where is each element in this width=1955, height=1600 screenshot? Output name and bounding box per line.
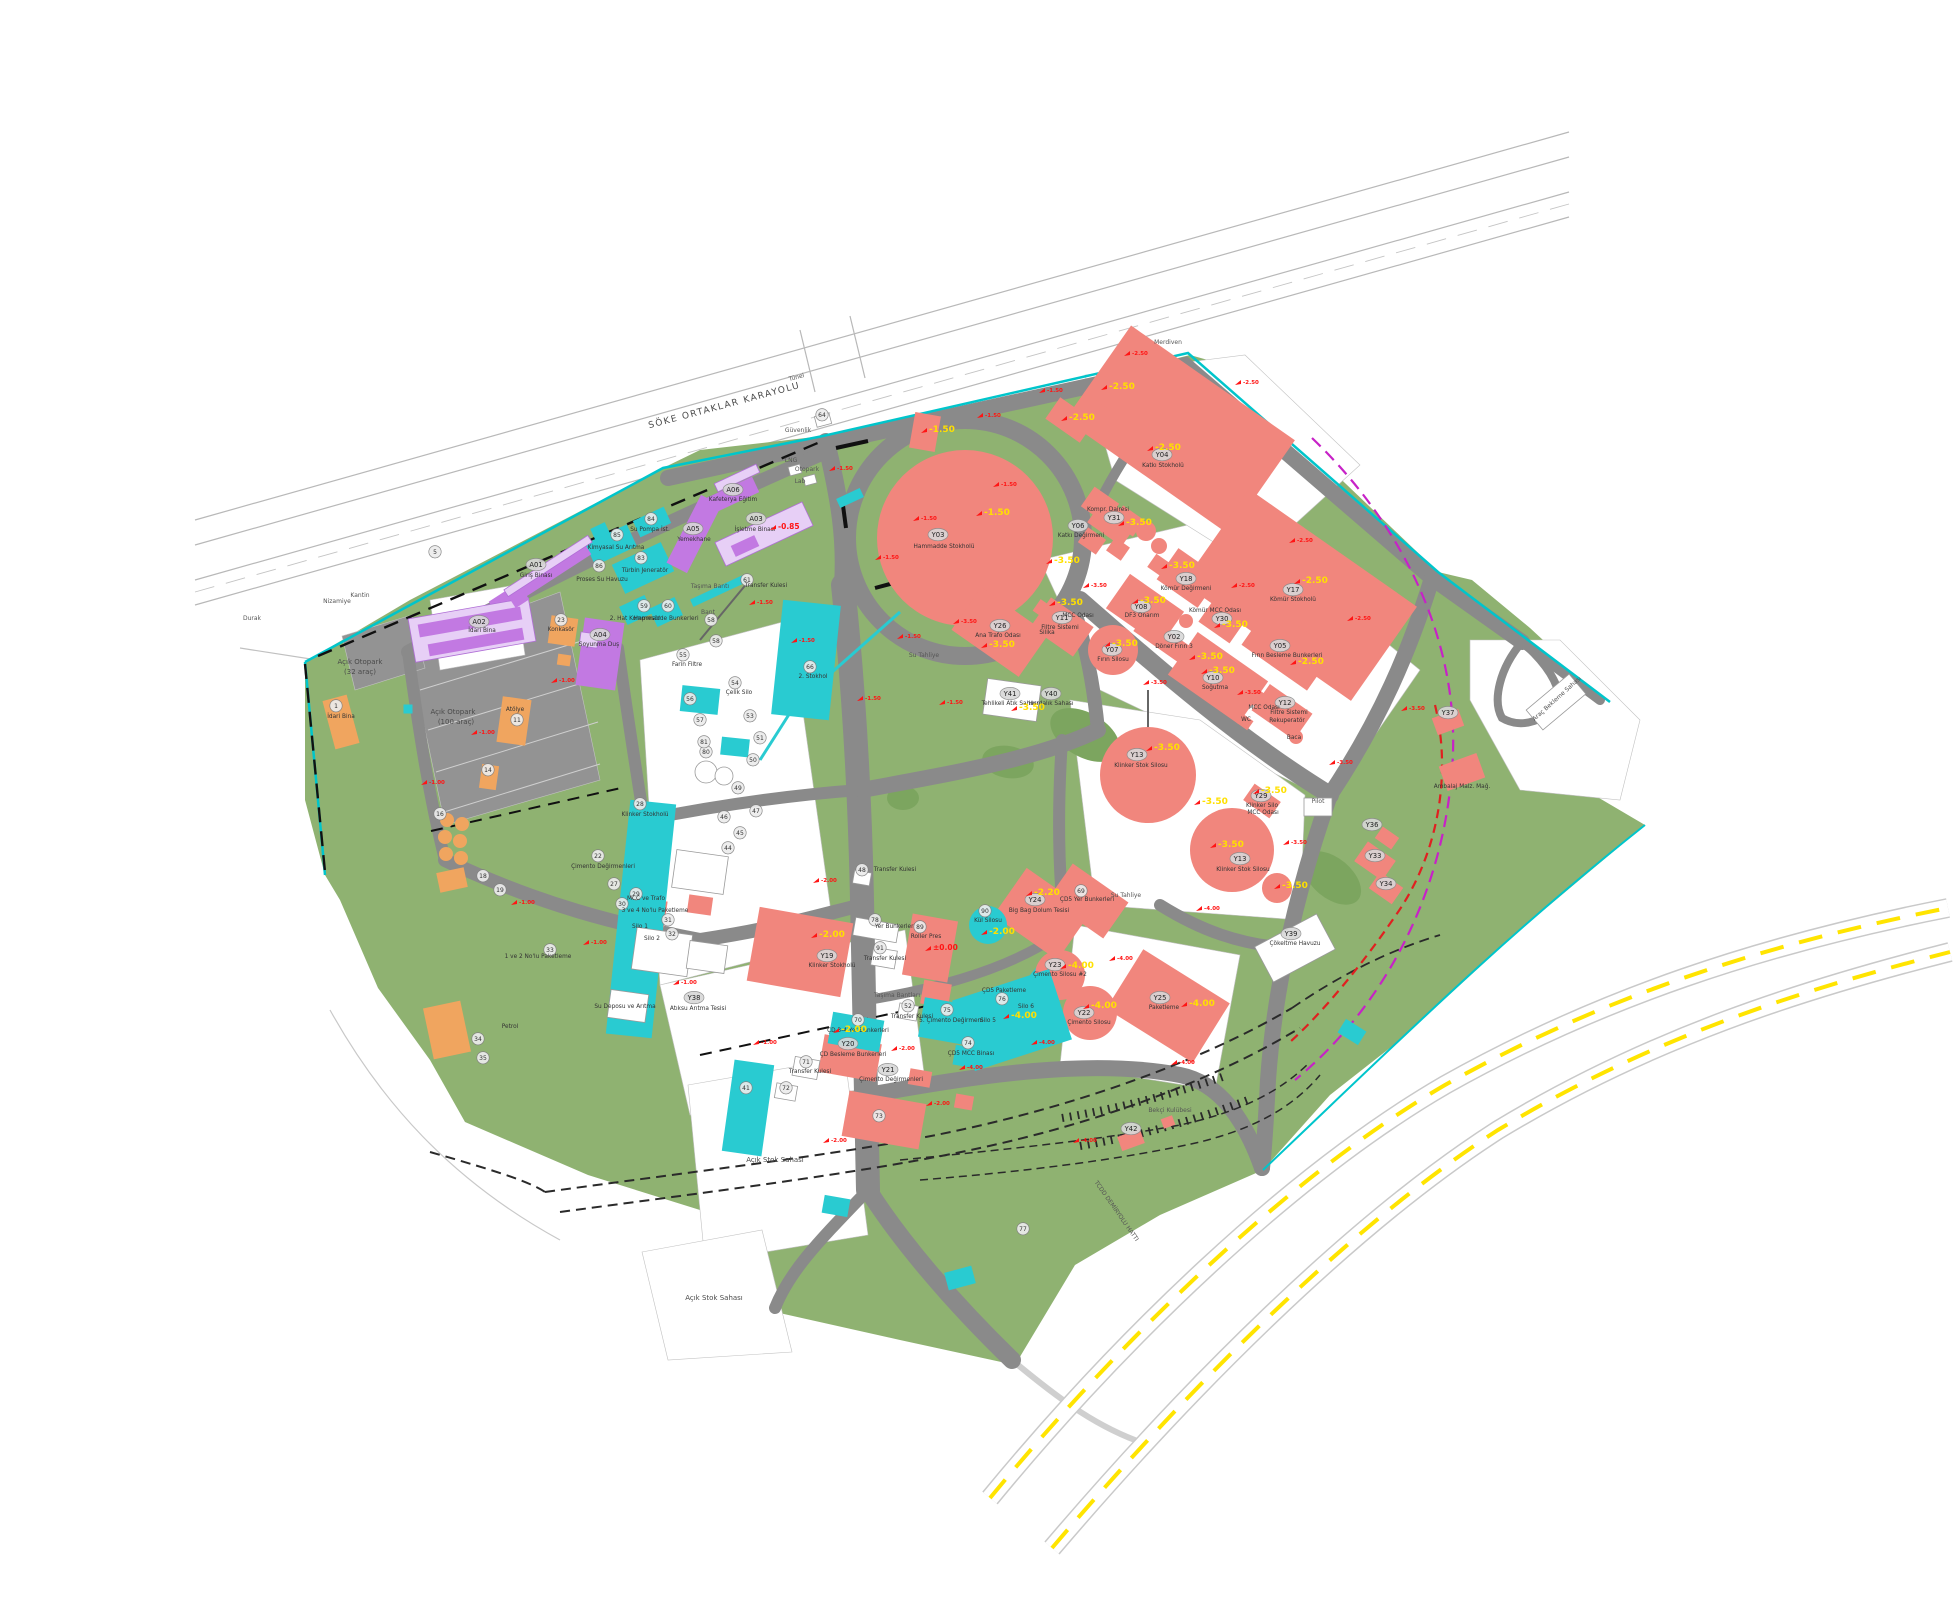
map-label-y03: Y03 bbox=[931, 531, 945, 539]
map-label-y13: Y13 bbox=[1233, 855, 1247, 863]
map-label-hammadde-bunkerleri: Hammadde Bunkerleri bbox=[633, 616, 699, 622]
map-label-y06: Y06 bbox=[1071, 522, 1085, 530]
map-label-proses-su-havuzu: Proses Su Havuzu bbox=[576, 577, 628, 583]
map-label-32-ara: (32 araç) bbox=[344, 668, 376, 676]
elevation-value-2-50: -2.50 bbox=[1155, 443, 1181, 453]
elevation-value-3-50: -3.50 bbox=[1126, 518, 1152, 528]
map-label-merdiven: Merdiven bbox=[1154, 339, 1182, 346]
map-label-11: 11 bbox=[513, 717, 521, 724]
elevation-value-3-50: -3.50 bbox=[1202, 797, 1228, 807]
elevation-value-1-50: -1.50 bbox=[837, 466, 853, 472]
elevation-value-2-50: -2.50 bbox=[1355, 616, 1371, 622]
elevation-value-1-50: -1.50 bbox=[947, 700, 963, 706]
map-label-35: 35 bbox=[479, 1055, 487, 1062]
elevation-value-3-50: -3.50 bbox=[989, 640, 1015, 650]
map-label-klinker-stokhol: Klinker Stokholü bbox=[808, 963, 855, 969]
building-kiln-extra-3 bbox=[1179, 614, 1193, 628]
elevation-value-1-00: -1.00 bbox=[559, 678, 575, 684]
elevation-value-3-50: -3.50 bbox=[1282, 881, 1308, 891]
map-label-konkas-r: Konkasör bbox=[548, 627, 575, 633]
map-label-f-r-n-silosu: Fırın Silosu bbox=[1097, 657, 1129, 663]
map-label-84: 84 bbox=[647, 516, 655, 523]
map-label-big-bag-dolum-tesisi: Big Bag Dolum Tesisi bbox=[1009, 908, 1070, 914]
map-label-y41: Y41 bbox=[1003, 690, 1017, 698]
elevation-value-1-00: -1.00 bbox=[681, 980, 697, 986]
map-label-y22: Y22 bbox=[1077, 1009, 1091, 1017]
building-stokhol-66 bbox=[771, 600, 841, 720]
map-label-y34: Y34 bbox=[1379, 880, 1393, 888]
map-label-90: 90 bbox=[981, 908, 989, 915]
map-label-imento-silosu: Çimento Silosu bbox=[1067, 1020, 1111, 1026]
elevation-value-2-50: -2.50 bbox=[1239, 583, 1255, 589]
map-label-y25: Y25 bbox=[1153, 994, 1167, 1002]
building-silo16-6 bbox=[454, 851, 468, 865]
map-label-a06: A06 bbox=[726, 486, 739, 494]
map-label-16: 16 bbox=[436, 811, 444, 818]
map-label-silo-1: Silo 1 bbox=[632, 924, 648, 930]
building-silo16-5 bbox=[439, 847, 453, 861]
map-label-transfer-kulesi: Transfer Kulesi bbox=[873, 867, 917, 873]
map-label-pilot: Pilot bbox=[1312, 798, 1325, 805]
elevation-value-4-00: -4.00 bbox=[1068, 961, 1094, 971]
map-label-50: 50 bbox=[749, 757, 757, 764]
building-silo-2 bbox=[715, 767, 733, 785]
map-label-46: 46 bbox=[720, 814, 728, 821]
map-label-57: 57 bbox=[696, 717, 704, 724]
building-mill-small-1 bbox=[687, 894, 713, 915]
map-label-89: 89 bbox=[916, 924, 924, 931]
elevation-value-2-00: -2.00 bbox=[899, 1046, 915, 1052]
map-label-a-k-stok-sahas: Açık Stok Sahası bbox=[746, 1156, 804, 1164]
map-label-imento-de-irmenleri: Çimento Değirmenleri bbox=[859, 1076, 923, 1083]
elevation-value-3-50: -3.50 bbox=[1019, 703, 1045, 713]
map-label-1: 1 bbox=[334, 703, 338, 710]
map-label-32: 32 bbox=[668, 931, 676, 938]
building-konkasor-23b bbox=[557, 654, 571, 667]
elevation-value-1-50: -1.50 bbox=[865, 696, 881, 702]
elevation-value-3-50: -3.50 bbox=[1091, 583, 1107, 589]
map-label-69: 69 bbox=[1077, 888, 1085, 895]
map-label-otopark: Otopark bbox=[795, 466, 820, 473]
map-label-y19: Y19 bbox=[820, 952, 834, 960]
map-label-at-ksu-ar-tma-tesisi: Atıksu Arıtma Tesisi bbox=[670, 1006, 727, 1012]
map-label-hammadde-stokhol: Hammadde Stokholü bbox=[914, 544, 975, 550]
building-mill-white-1 bbox=[672, 850, 729, 895]
map-label-giri-binas: Giriş Binası bbox=[520, 573, 553, 579]
elevation-value-2-00: -2.00 bbox=[831, 1138, 847, 1144]
map-label-y23: Y23 bbox=[1048, 961, 1062, 969]
elevation-value-2-50: -2.50 bbox=[1109, 382, 1135, 392]
map-label-33: 33 bbox=[546, 947, 554, 954]
map-label-86: 86 bbox=[595, 563, 603, 570]
elevation-value-3-50: -3.50 bbox=[1169, 561, 1195, 571]
map-label-k-l-silosu: Kül Silosu bbox=[974, 918, 1002, 924]
map-label-2-stokhol: 2. Stokhol bbox=[798, 674, 827, 680]
elevation-value-3-50: -3.50 bbox=[1154, 743, 1180, 753]
map-label-transfer-kulesi: Transfer Kulesi bbox=[788, 1069, 832, 1075]
map-label-su-deposu-ve-ar-tma: Su Deposu ve Arıtma bbox=[594, 1004, 656, 1010]
map-label-64: 64 bbox=[818, 412, 826, 419]
map-label-y20: Y20 bbox=[841, 1040, 855, 1048]
elevation-value-3-50: -3.50 bbox=[1057, 598, 1083, 608]
map-label-51: 51 bbox=[756, 735, 764, 742]
map-label-imento-de-irmenleri: Çimento Değirmenleri bbox=[571, 863, 635, 870]
map-label-klinker-stok-silosu: Klinker Stok Silosu bbox=[1114, 763, 1168, 769]
map-label-transfer-kulesi: Transfer Kulesi bbox=[744, 583, 788, 589]
elevation-value-0-85: -0.85 bbox=[778, 522, 800, 531]
map-label-77: 77 bbox=[1019, 1226, 1027, 1233]
map-label-a05: A05 bbox=[686, 525, 699, 533]
map-label-s-ke-ortaklar-karayolu: SÖKE ORTAKLAR KARAYOLU bbox=[647, 380, 801, 431]
map-label-paketleme: Paketleme bbox=[1149, 1005, 1180, 1011]
elevation-value-3-50: -3.50 bbox=[1337, 760, 1353, 766]
map-label-70: 70 bbox=[854, 1017, 862, 1024]
map-label-y37: Y37 bbox=[1441, 709, 1455, 717]
map-label-lng: LNG bbox=[785, 457, 798, 464]
map-label-so-utma: Soğutma bbox=[1202, 684, 1228, 691]
building-mill-white-2 bbox=[631, 927, 692, 976]
map-label-su-pompa-i-st: Su Pompa İst. bbox=[630, 526, 670, 533]
elevation-value-3-50: -3.50 bbox=[1261, 786, 1287, 796]
building-mill-white-3 bbox=[686, 940, 728, 973]
map-label-y18: Y18 bbox=[1179, 575, 1193, 583]
map-label-76: 76 bbox=[998, 996, 1006, 1003]
map-label-y17: Y17 bbox=[1286, 586, 1300, 594]
map-label-y26: Y26 bbox=[993, 622, 1007, 630]
map-label-49: 49 bbox=[734, 785, 742, 792]
map-label-soyunma-du: Soyunma Duş bbox=[579, 642, 619, 648]
map-label-kafeterya-e-itim: Kafeterya Eğitim bbox=[709, 496, 758, 503]
building-cyan-mid-2 bbox=[720, 737, 750, 758]
map-label-a02: A02 bbox=[472, 618, 485, 626]
map-label-45: 45 bbox=[736, 830, 744, 837]
elevation-value-1-50: -1.50 bbox=[1001, 482, 1017, 488]
building-silo16-4 bbox=[453, 834, 467, 848]
map-label-i-letme-binas: İşletme Binası bbox=[735, 526, 776, 533]
map-label-41: 41 bbox=[742, 1085, 750, 1092]
map-label-1-ve-2-no-lu-paketleme: 1 ve 2 No'lu Paketleme bbox=[505, 954, 572, 960]
map-label-nizamiye: Nizamiye bbox=[323, 598, 351, 605]
map-label-ta-ma-bant: Taşıma Bantı bbox=[690, 583, 730, 590]
map-label-durak: Durak bbox=[243, 615, 262, 622]
map-label-i-dari-bina: İdari Bina bbox=[468, 627, 496, 634]
map-label-su-tahliye: Su Tahliye bbox=[1111, 892, 1142, 899]
elevation-value-3-50: -3.50 bbox=[1218, 840, 1244, 850]
map-label-katk-stokhol: Katkı Stokholü bbox=[1142, 463, 1184, 469]
elevation-value-2-00: -2.00 bbox=[819, 930, 845, 940]
map-label-60: 60 bbox=[664, 603, 672, 610]
map-label-71: 71 bbox=[802, 1059, 810, 1066]
map-label-g-venlik: Güvenlik bbox=[785, 427, 812, 434]
elevation-value-2-50: -2.50 bbox=[1298, 657, 1324, 667]
building-y13-a bbox=[1100, 727, 1196, 823]
map-label-a-k-otopark: Açık Otopark bbox=[431, 708, 477, 716]
elevation-value-4-00: -4.00 bbox=[1179, 1060, 1195, 1066]
map-canvas: SÖKE ORTAKLAR KARAYOLUTünelDurakNizamiye… bbox=[0, 0, 1955, 1600]
elevation-value-2-50: -2.50 bbox=[1297, 538, 1313, 544]
map-label-56: 56 bbox=[686, 696, 694, 703]
map-label-su-tahliye: Su Tahliye bbox=[909, 652, 940, 659]
building-cyan-tiny bbox=[404, 705, 413, 714]
map-label-27: 27 bbox=[610, 881, 618, 888]
elevation-value-3-50: -3.50 bbox=[1409, 706, 1425, 712]
map-label-y31: Y31 bbox=[1107, 514, 1121, 522]
map-label-5: 5 bbox=[433, 549, 437, 556]
map-label-k-m-r-mcc-odas: Kömür MCC Odası bbox=[1189, 608, 1241, 614]
map-label-y05: Y05 bbox=[1273, 642, 1287, 650]
map-label-22: 22 bbox=[594, 853, 602, 860]
site-plan-map: SÖKE ORTAKLAR KARAYOLUTünelDurakNizamiye… bbox=[0, 0, 1955, 1600]
map-label-kompr-dairesi: Kompr. Dairesi bbox=[1087, 507, 1129, 513]
building-silo-1 bbox=[695, 761, 717, 783]
map-label-y36: Y36 bbox=[1365, 821, 1379, 829]
elevation-value-1-50: -1.50 bbox=[1047, 388, 1063, 394]
map-label-bek-i-kul-besi: Bekçi Kulübesi bbox=[1148, 1107, 1192, 1114]
map-label-83: 83 bbox=[637, 555, 645, 562]
road-18 bbox=[1059, 740, 1062, 900]
map-label-y13: Y13 bbox=[1130, 751, 1144, 759]
elevation-value-2-00: -2.00 bbox=[841, 1025, 867, 1035]
outer-road-6 bbox=[850, 316, 865, 378]
map-label-58: 58 bbox=[712, 638, 720, 645]
map-label-ta-ma-bantlar: Taşıma Bantları bbox=[873, 992, 920, 999]
map-label-klinker-stokhol: Klinker Stokholü bbox=[621, 812, 668, 818]
map-label-mcc-ve-trafo: MCC ve Trafo bbox=[627, 896, 665, 902]
map-label-59: 59 bbox=[640, 603, 648, 610]
map-label-d5-mcc-binas: ÇD5 MCC Binası bbox=[948, 1051, 995, 1057]
map-label-74: 74 bbox=[964, 1040, 972, 1047]
map-label-73: 73 bbox=[875, 1113, 883, 1120]
map-label-petrol: Petrol bbox=[502, 1024, 519, 1030]
map-label-farin-filtre: Farin Filtre bbox=[672, 662, 703, 668]
map-label-imento-silosu-2: Çimento Silosu #2 bbox=[1033, 972, 1087, 978]
map-label-mcc-odas: MCC Odası bbox=[1062, 613, 1094, 619]
map-label-y39: Y39 bbox=[1284, 930, 1298, 938]
elevation-value-1-50: -1.50 bbox=[799, 638, 815, 644]
map-label-44: 44 bbox=[724, 845, 732, 852]
map-label-100-ara: (100 araç) bbox=[438, 718, 475, 726]
elevation-value-1-00: -1.00 bbox=[761, 1040, 777, 1046]
map-label-klinker-silo: Klinker Silo bbox=[1246, 803, 1279, 809]
map-label-katk-de-irmeni: Katkı Değirmeni bbox=[1058, 532, 1105, 539]
map-label-58: 58 bbox=[707, 617, 715, 624]
building-silo16-3 bbox=[438, 830, 452, 844]
map-label-3-ve-4-no-lu-paketleme: 3 ve 4 No'lu Paketleme bbox=[622, 908, 689, 914]
map-label-klinker-stok-silosu: Klinker Stok Silosu bbox=[1216, 867, 1270, 873]
map-label-silo-6: Silo 6 bbox=[1018, 1004, 1034, 1010]
map-label-wc: WC bbox=[1241, 717, 1251, 723]
elevation-value-1-50: -1.50 bbox=[984, 508, 1010, 518]
map-label-yemekhane: Yemekhane bbox=[676, 537, 711, 543]
elevation-value-3-50: -3.50 bbox=[1222, 620, 1248, 630]
map-label-ana-trafo-odas: Ana Trafo Odası bbox=[975, 633, 1021, 639]
map-label-y33: Y33 bbox=[1368, 852, 1382, 860]
map-label-28: 28 bbox=[636, 801, 644, 808]
map-label-81: 81 bbox=[700, 739, 708, 746]
map-label-df3-onar-m: DF3 Onarım bbox=[1125, 613, 1160, 619]
elevation-value-2-50: -2.50 bbox=[1132, 351, 1148, 357]
map-label-lab: Lab bbox=[795, 478, 806, 485]
building-y06-f bbox=[1151, 538, 1167, 554]
elevation-value-4-00: -4.00 bbox=[1091, 1001, 1117, 1011]
map-label-kantin: Kantin bbox=[350, 592, 369, 599]
map-label-ambalaj-malz-ma: Ambalaj Malz. Mağ. bbox=[1434, 783, 1491, 790]
elevation-value-3-50: -3.50 bbox=[1197, 652, 1223, 662]
map-label-roller-pres: Roller Pres bbox=[911, 934, 942, 940]
map-label-d5-paketleme: ÇD5 Paketleme bbox=[982, 988, 1027, 994]
map-label-54: 54 bbox=[731, 680, 739, 687]
elevation-value-3-50: -3.50 bbox=[1291, 840, 1307, 846]
map-label-kimyasal-su-ar-tma: Kimyasal Su Arıtma bbox=[588, 545, 645, 551]
elevation-value-1-00: -1.00 bbox=[429, 780, 445, 786]
map-label-a01: A01 bbox=[529, 561, 542, 569]
map-label-silo-5: Silo 5 bbox=[980, 1018, 996, 1024]
map-label-d5-yer-bunkerleri: ÇD5 Yer Bunkerleri bbox=[1060, 897, 1115, 903]
map-label-d-besleme-bunkerleri: ÇD Besleme Bunkerleri bbox=[820, 1052, 887, 1058]
map-label-y38: Y38 bbox=[687, 994, 701, 1002]
map-label-91: 91 bbox=[876, 945, 884, 952]
elevation-value-2-00: -2.00 bbox=[989, 927, 1015, 937]
map-label-k-m-r-de-irmeni: Kömür Değirmeni bbox=[1161, 585, 1212, 592]
elevation-value-4-00: -4.00 bbox=[1039, 1040, 1055, 1046]
elevation-value-3-50: -3.50 bbox=[1245, 690, 1261, 696]
elevation-value-2-00: -2.00 bbox=[934, 1101, 950, 1107]
map-label-k-m-r-stokhol: Kömür Stokholü bbox=[1270, 597, 1316, 603]
elevation-value-2-50: -2.50 bbox=[1069, 413, 1095, 423]
map-label-a-k-otopark: Açık Otopark bbox=[338, 658, 384, 666]
elevation-value-2-50: -2.50 bbox=[1243, 380, 1259, 386]
map-label-at-lye: Atölye bbox=[506, 707, 525, 713]
outer-road-5 bbox=[800, 330, 815, 392]
map-label-23: 23 bbox=[557, 617, 565, 624]
map-label-y02: Y02 bbox=[1167, 633, 1181, 641]
elevation-value-3-50: -3.50 bbox=[1112, 639, 1138, 649]
building-y03 bbox=[877, 450, 1053, 626]
map-label-rekuperat-r: Rekuperatör bbox=[1269, 718, 1305, 724]
map-label-y40: Y40 bbox=[1044, 690, 1058, 698]
map-label-a-k-stok-sahas: Açık Stok Sahası bbox=[685, 1294, 743, 1302]
elevation-value-1-00: -1.00 bbox=[591, 940, 607, 946]
elevation-value-1-50: -1.50 bbox=[905, 634, 921, 640]
elevation-value-4-00: -4.00 bbox=[967, 1065, 983, 1071]
map-label-5-imento-de-irmeni: 5. Çimento Değirmeni bbox=[919, 1017, 983, 1024]
elevation-value-1-50: -1.50 bbox=[883, 555, 899, 561]
elevation-value-2-00: -2.00 bbox=[821, 878, 837, 884]
building-silo16-2 bbox=[455, 817, 469, 831]
elevation-value-4-00: -4.00 bbox=[1189, 999, 1215, 1009]
line-14 bbox=[430, 1152, 545, 1192]
map-label-y42: Y42 bbox=[1124, 1125, 1138, 1133]
map-label-yer-bunkerleri: Yer Bunkerleri bbox=[874, 924, 916, 930]
map-label-t-rbin-jenerat-r: Türbin Jeneratör bbox=[621, 568, 669, 574]
elevation-value-4-00: -4.00 bbox=[1011, 1011, 1037, 1021]
map-label-52: 52 bbox=[904, 1003, 912, 1010]
elevation-value-3-50: -3.50 bbox=[1209, 666, 1235, 676]
elevation-value-4-00: -4.00 bbox=[1204, 906, 1220, 912]
map-label-mcc-odas: MCC Odası bbox=[1247, 810, 1279, 816]
map-label-53: 53 bbox=[746, 713, 754, 720]
elevation-value-3-50: -3.50 bbox=[961, 619, 977, 625]
map-label-48: 48 bbox=[858, 867, 866, 874]
elevation-value-1-50: -1.50 bbox=[929, 425, 955, 435]
map-label-80: 80 bbox=[702, 749, 710, 756]
elevation-value-3-50: -3.50 bbox=[1054, 556, 1080, 566]
map-label-18: 18 bbox=[479, 873, 487, 880]
elevation-value-4-00: -4.00 bbox=[1081, 1138, 1097, 1144]
elevation-value-4-00: -4.00 bbox=[1117, 956, 1133, 962]
map-label-75: 75 bbox=[943, 1007, 951, 1014]
map-label-34: 34 bbox=[474, 1036, 482, 1043]
elevation-value-3-50: -3.50 bbox=[1140, 596, 1166, 606]
map-label-14: 14 bbox=[484, 767, 492, 774]
map-label-a04: A04 bbox=[593, 631, 606, 639]
map-label-baca: Baca bbox=[1287, 735, 1302, 741]
elevation-value-0-00: ±0.00 bbox=[933, 943, 958, 952]
map-label-y21: Y21 bbox=[881, 1066, 895, 1074]
map-label-85: 85 bbox=[613, 532, 621, 539]
elevation-value-1-00: -1.00 bbox=[479, 730, 495, 736]
elevation-value-2-20: -2.20 bbox=[1034, 888, 1060, 898]
map-label-a03: A03 bbox=[749, 515, 762, 523]
map-label-keltme-havuzu: Çökeltme Havuzu bbox=[1270, 941, 1321, 947]
elevation-value-1-00: -1.00 bbox=[519, 900, 535, 906]
map-label-transfer-kulesi: Transfer Kulesi bbox=[863, 956, 907, 962]
elevation-value-1-50: -1.50 bbox=[757, 600, 773, 606]
map-label-72: 72 bbox=[782, 1085, 790, 1092]
map-label-78: 78 bbox=[871, 917, 879, 924]
map-label-47: 47 bbox=[752, 808, 760, 815]
map-label-filtre-sistemi: Filtre Sistemi bbox=[1270, 710, 1308, 716]
building-y13-b bbox=[1190, 808, 1274, 892]
elevation-value-2-50: -2.50 bbox=[1302, 576, 1328, 586]
map-label-66: 66 bbox=[806, 664, 814, 671]
elevation-value-1-50: -1.50 bbox=[985, 413, 1001, 419]
map-label-30: 30 bbox=[618, 901, 626, 908]
elevation-value-3-50: -3.50 bbox=[1151, 680, 1167, 686]
map-label-19: 19 bbox=[496, 887, 504, 894]
map-label-55: 55 bbox=[679, 652, 687, 659]
map-label-31: 31 bbox=[664, 917, 672, 924]
map-label-d-ner-f-r-n-3: Döner Fırın 3 bbox=[1155, 644, 1193, 650]
map-label-elik-silo: Çelik Silo bbox=[726, 690, 753, 696]
map-label-i-dari-bina: İdari Bina bbox=[327, 713, 355, 720]
elevation-value-1-50: -1.50 bbox=[921, 516, 937, 522]
map-label-silika: Silika bbox=[1039, 630, 1055, 636]
map-label-silo-2: Silo 2 bbox=[644, 936, 660, 942]
